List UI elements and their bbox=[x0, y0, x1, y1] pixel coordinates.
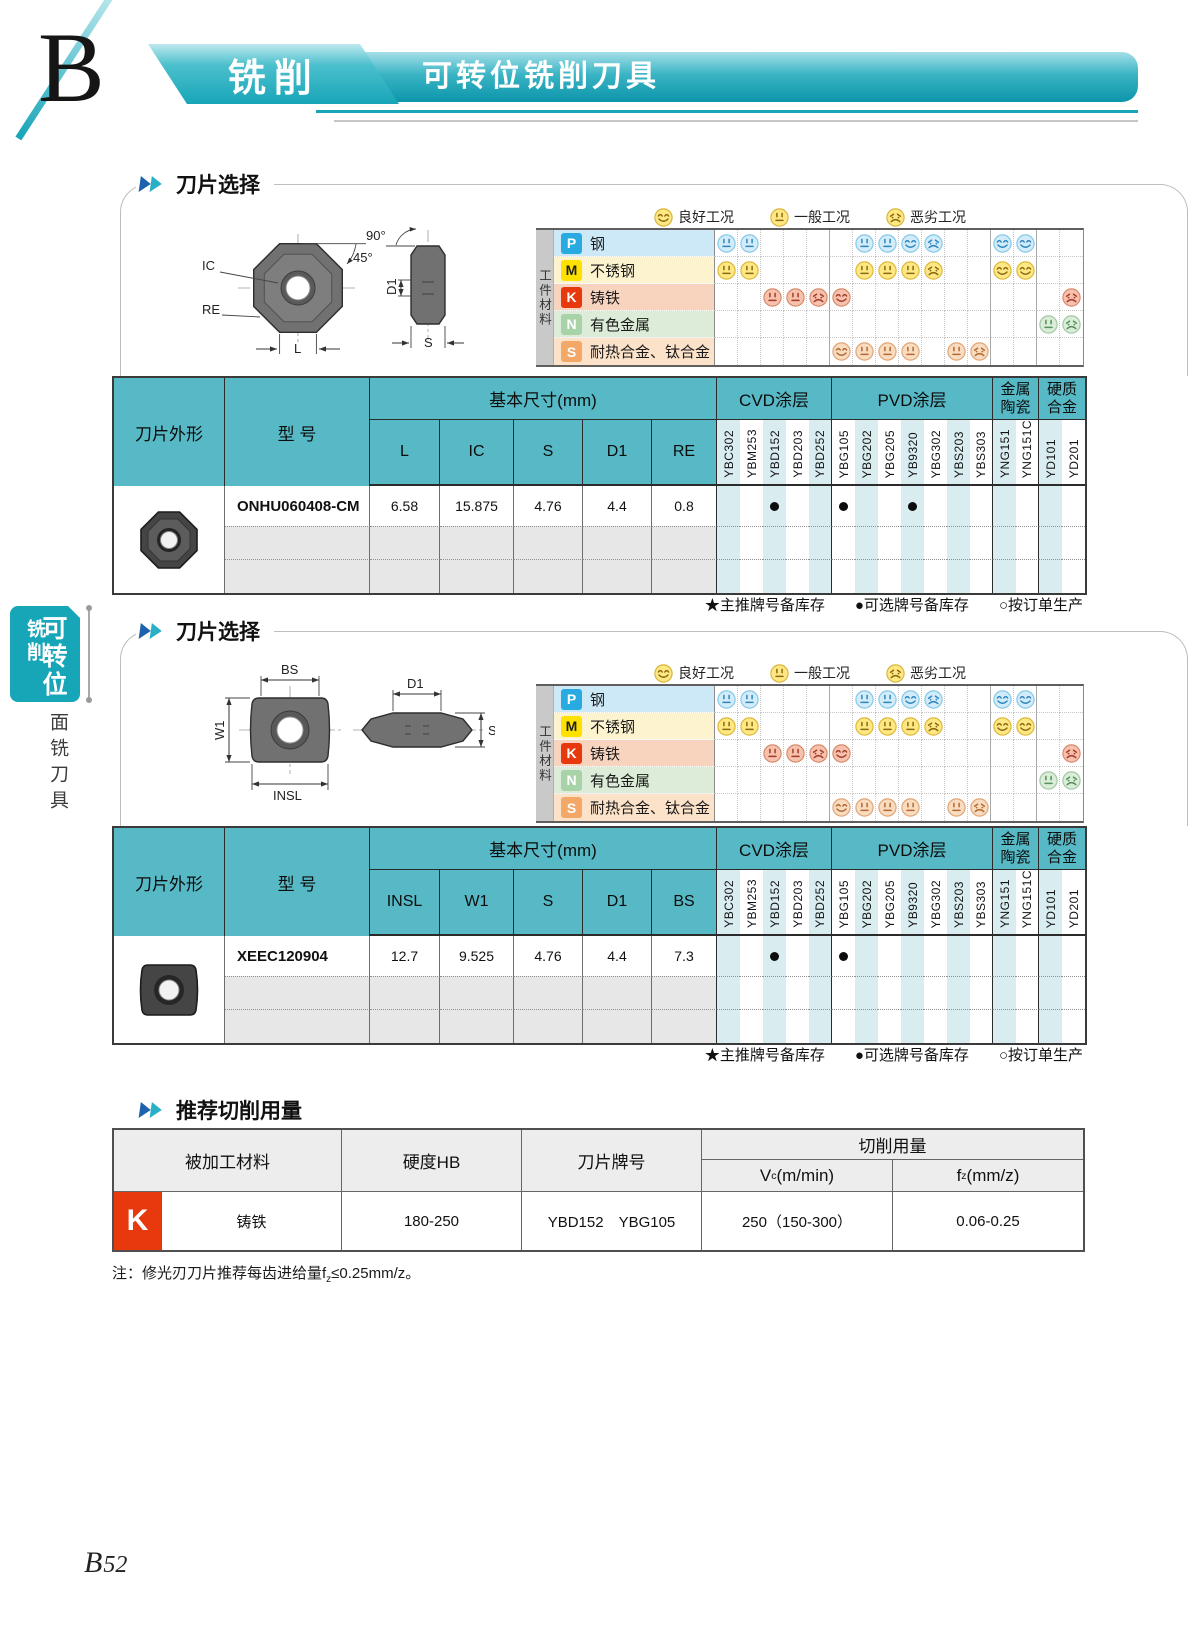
dim-label-ic: IC bbox=[202, 258, 215, 273]
suitability-cell bbox=[1014, 284, 1037, 311]
grade-column-header: YD201 bbox=[1062, 870, 1085, 936]
availability-cell bbox=[878, 486, 901, 526]
suitability-cell bbox=[945, 338, 968, 365]
stock-legend-2: ★主推牌号备库存●可选牌号备库存○按订单生产 bbox=[705, 1044, 1083, 1065]
grade-column-header: YB9320 bbox=[901, 420, 924, 486]
empty-availability-cell bbox=[809, 1009, 832, 1043]
empty-availability-cell bbox=[1039, 976, 1062, 1009]
good-face-icon bbox=[993, 261, 1012, 280]
material-name: 有色金属 bbox=[590, 314, 650, 335]
suitability-cell bbox=[853, 713, 876, 740]
empty-availability-cell bbox=[855, 976, 878, 1009]
good-face-icon bbox=[1016, 717, 1035, 736]
header-rule-accent bbox=[316, 110, 1138, 113]
grade-column-header: YBD203 bbox=[786, 420, 809, 486]
avg-face-icon bbox=[786, 744, 805, 763]
good-face-icon bbox=[1016, 261, 1035, 280]
suitability-cell bbox=[899, 230, 922, 257]
double-chevron-icon bbox=[138, 175, 166, 193]
grade-group-label: 硬质合金 bbox=[1047, 831, 1077, 867]
column-header-shape: 刀片外形 bbox=[114, 828, 225, 936]
availability-cell bbox=[1016, 486, 1039, 526]
material-row-label: S耐热合金、钛合金 bbox=[554, 794, 715, 821]
good-face-icon bbox=[1016, 690, 1035, 709]
empty-model-cell bbox=[225, 526, 370, 559]
suitability-cell bbox=[807, 338, 830, 365]
grade-name: YBG105 bbox=[838, 880, 850, 928]
suitability-cell bbox=[1060, 740, 1083, 767]
suitability-cell bbox=[784, 686, 807, 713]
empty-availability-cell bbox=[786, 559, 809, 593]
grade-column-header: YBS303 bbox=[970, 420, 993, 486]
legend-label: 良好工况 bbox=[678, 207, 734, 227]
grade-column-header: YBG105 bbox=[832, 420, 855, 486]
grade-group-line: 合金 bbox=[1047, 849, 1077, 867]
suitability-cell bbox=[830, 713, 853, 740]
grade-column-header: YBD152 bbox=[763, 420, 786, 486]
suitability-cell bbox=[945, 713, 968, 740]
empty-availability-cell bbox=[1016, 1009, 1039, 1043]
empty-availability-cell bbox=[786, 976, 809, 1009]
dimension-column-header: S bbox=[514, 870, 583, 936]
cut-header-vc: Vc(m/min) bbox=[702, 1160, 893, 1192]
size-value: 4.4 bbox=[583, 486, 652, 526]
empty-availability-cell bbox=[1062, 1009, 1085, 1043]
suitability-cell bbox=[1037, 284, 1060, 311]
header-rule-gray bbox=[334, 120, 1138, 122]
suitability-cell bbox=[945, 767, 968, 794]
suitability-cell bbox=[1037, 794, 1060, 821]
grade-column-header: YBC302 bbox=[717, 870, 740, 936]
grade-name: YBG202 bbox=[861, 880, 873, 928]
empty-availability-cell bbox=[947, 976, 970, 1009]
suitability-cell bbox=[1060, 230, 1083, 257]
suitability-cell bbox=[738, 338, 761, 365]
empty-size-cell bbox=[652, 976, 717, 1009]
empty-availability-cell bbox=[878, 526, 901, 559]
sidebar-section-label: 面铣刀具 bbox=[44, 712, 71, 816]
availability-cell bbox=[1039, 486, 1062, 526]
material-name: 不锈钢 bbox=[590, 260, 635, 281]
suitability-cell bbox=[991, 686, 1014, 713]
avg-face-icon bbox=[878, 234, 897, 253]
suitability-cell bbox=[899, 311, 922, 338]
empty-size-cell bbox=[514, 559, 583, 593]
suitability-cell bbox=[715, 713, 738, 740]
empty-availability-cell bbox=[970, 976, 993, 1009]
empty-size-cell bbox=[514, 1009, 583, 1043]
suitability-cell bbox=[968, 713, 991, 740]
grade-name: YB9320 bbox=[907, 882, 919, 928]
grade-group-line: 合金 bbox=[1047, 399, 1077, 417]
availability-cell bbox=[947, 936, 970, 976]
grade-name: YBM253 bbox=[746, 879, 758, 928]
avg-face-icon bbox=[740, 717, 759, 736]
material-row-label: K铸铁 bbox=[554, 284, 715, 311]
suitability-cell bbox=[991, 338, 1014, 365]
suitability-cell bbox=[922, 767, 945, 794]
suitability-cell bbox=[761, 686, 784, 713]
avg-face-icon bbox=[770, 208, 789, 227]
suitability-cell bbox=[1014, 230, 1037, 257]
suitability-cell bbox=[1037, 767, 1060, 794]
grade-name: YBD252 bbox=[814, 430, 826, 478]
suitability-cell bbox=[1037, 257, 1060, 284]
dimension-column-header: IC bbox=[440, 420, 514, 486]
grade-name: YBS203 bbox=[953, 431, 965, 478]
suitability-cell bbox=[1060, 713, 1083, 740]
empty-availability-cell bbox=[901, 1009, 924, 1043]
grade-column-header: YBS203 bbox=[947, 870, 970, 936]
vc-unit: (m/min) bbox=[776, 1166, 834, 1186]
material-badge-k: K bbox=[114, 1192, 162, 1250]
suitability-cell bbox=[899, 686, 922, 713]
avg-face-icon bbox=[740, 261, 759, 280]
suitability-cell bbox=[1037, 740, 1060, 767]
good-face-icon bbox=[832, 744, 851, 763]
suitability-cell bbox=[968, 338, 991, 365]
empty-availability-cell bbox=[786, 1009, 809, 1043]
dimension-column-header: W1 bbox=[440, 870, 514, 936]
suitability-cell bbox=[738, 767, 761, 794]
suitability-cell bbox=[922, 794, 945, 821]
grade-name: YNG151 bbox=[999, 429, 1011, 478]
dimension-column-header: INSL bbox=[370, 870, 440, 936]
suitability-cell bbox=[738, 740, 761, 767]
suitability-cell bbox=[876, 794, 899, 821]
grade-column-header: YBD152 bbox=[763, 870, 786, 936]
suitability-cell bbox=[761, 311, 784, 338]
column-header-model: 型 号 bbox=[225, 828, 370, 936]
grade-group-label: 金属陶瓷 bbox=[1000, 831, 1030, 867]
suitability-cell bbox=[761, 713, 784, 740]
chapter-letter: B bbox=[38, 18, 105, 118]
material-row-label: S耐热合金、钛合金 bbox=[554, 338, 715, 365]
grade-name: YNG151C bbox=[1021, 870, 1033, 928]
good-face-icon bbox=[832, 798, 851, 817]
grade-column-header: YD101 bbox=[1039, 870, 1062, 936]
legend-label: 恶劣工况 bbox=[910, 663, 966, 683]
dim-label-bs: BS bbox=[281, 662, 299, 677]
dimension-column-header: S bbox=[514, 420, 583, 486]
size-value: 4.4 bbox=[583, 936, 652, 976]
section-title-text: 刀片选择 bbox=[176, 169, 260, 199]
empty-availability-cell bbox=[901, 976, 924, 1009]
grade-group-header: 硬质合金 bbox=[1039, 828, 1085, 870]
dim-label-w1: W1 bbox=[212, 721, 227, 741]
empty-availability-cell bbox=[809, 976, 832, 1009]
suitability-cell bbox=[853, 257, 876, 284]
empty-size-cell bbox=[514, 526, 583, 559]
suitability-cell bbox=[761, 338, 784, 365]
empty-availability-cell bbox=[1016, 559, 1039, 593]
grade-column-header: YBC302 bbox=[717, 420, 740, 486]
suitability-cell bbox=[922, 311, 945, 338]
empty-availability-cell bbox=[740, 1009, 763, 1043]
availability-cell bbox=[740, 936, 763, 976]
size-value: 12.7 bbox=[370, 936, 440, 976]
suitability-cell bbox=[945, 686, 968, 713]
fz-unit: (mm/z) bbox=[967, 1166, 1020, 1186]
section-title-text: 推荐切削用量 bbox=[176, 1095, 302, 1125]
avg-face-icon bbox=[1039, 315, 1058, 334]
grade-name: YBD152 bbox=[769, 430, 781, 478]
suitability-cell bbox=[1037, 230, 1060, 257]
dim-label-s: S bbox=[488, 723, 495, 738]
header-category-label: 铣削 bbox=[227, 47, 319, 102]
empty-size-cell bbox=[652, 1009, 717, 1043]
suitability-cell bbox=[830, 284, 853, 311]
suitability-cell bbox=[1060, 338, 1083, 365]
suitability-cell bbox=[1060, 767, 1083, 794]
grade-name: YNG151 bbox=[999, 879, 1011, 928]
grade-column-header: YBG202 bbox=[855, 420, 878, 486]
insert-model: ONHU060408-CM bbox=[225, 486, 370, 526]
material-badge: N bbox=[561, 770, 582, 791]
grade-group-header: CVD涂层 bbox=[717, 378, 832, 420]
suitability-cell bbox=[991, 257, 1014, 284]
grade-group-label: 金属陶瓷 bbox=[1000, 381, 1030, 417]
suitability-cell bbox=[945, 257, 968, 284]
suitability-cell bbox=[853, 686, 876, 713]
suitability-cell bbox=[1014, 257, 1037, 284]
legend-item: 恶劣工况 bbox=[886, 207, 966, 227]
bad-face-icon bbox=[809, 744, 828, 763]
availability-cell bbox=[970, 936, 993, 976]
empty-availability-cell bbox=[740, 526, 763, 559]
grade-group-header: 金属陶瓷 bbox=[993, 828, 1039, 870]
material-badge: P bbox=[561, 689, 582, 710]
stock-legend-item: ★主推牌号备库存 bbox=[705, 594, 825, 615]
suitability-cell bbox=[784, 794, 807, 821]
availability-cell bbox=[878, 936, 901, 976]
sidebar-tab-sub: 铣削 bbox=[21, 619, 48, 665]
suitability-cell bbox=[899, 713, 922, 740]
empty-availability-cell bbox=[740, 559, 763, 593]
empty-size-cell bbox=[440, 526, 514, 559]
suitability-cell bbox=[968, 257, 991, 284]
suitability-cell bbox=[968, 767, 991, 794]
bad-face-icon bbox=[809, 288, 828, 307]
suitability-cell bbox=[830, 257, 853, 284]
section-title-text: 刀片选择 bbox=[176, 616, 260, 646]
suitability-cell bbox=[991, 284, 1014, 311]
cut-header-fz: fz(mm/z) bbox=[893, 1160, 1083, 1192]
grade-column-header: YBM253 bbox=[740, 870, 763, 936]
suitability-cell bbox=[830, 767, 853, 794]
avg-face-icon bbox=[717, 234, 736, 253]
empty-availability-cell bbox=[763, 526, 786, 559]
sidebar-rule bbox=[88, 610, 90, 698]
legend-label: 一般工况 bbox=[794, 663, 850, 683]
availability-cell bbox=[832, 486, 855, 526]
workpiece-material-text: 工件材料 bbox=[535, 725, 554, 783]
availability-cell bbox=[809, 936, 832, 976]
grade-column-header: YBG205 bbox=[878, 870, 901, 936]
grade-column-header: YBD252 bbox=[809, 420, 832, 486]
suitability-cell bbox=[784, 338, 807, 365]
availability-cell bbox=[809, 486, 832, 526]
empty-size-cell bbox=[583, 526, 652, 559]
availability-cell bbox=[855, 486, 878, 526]
column-header-model: 型 号 bbox=[225, 378, 370, 486]
empty-availability-cell bbox=[763, 1009, 786, 1043]
size-value: 4.76 bbox=[514, 936, 583, 976]
availability-dot bbox=[770, 952, 779, 961]
suitability-cell bbox=[899, 257, 922, 284]
suitability-cell bbox=[853, 311, 876, 338]
availability-cell bbox=[832, 936, 855, 976]
avg-face-icon bbox=[878, 717, 897, 736]
suitability-cell bbox=[738, 311, 761, 338]
availability-dot bbox=[839, 502, 848, 511]
empty-availability-cell bbox=[717, 976, 740, 1009]
cut-header-material: 被加工材料 bbox=[114, 1130, 342, 1192]
avg-face-icon bbox=[740, 690, 759, 709]
empty-availability-cell bbox=[786, 526, 809, 559]
dim-label-re: RE bbox=[202, 302, 220, 317]
stock-legend-item: ○按订单生产 bbox=[999, 1044, 1083, 1065]
section1-title: 刀片选择 bbox=[136, 170, 274, 198]
suitability-cell bbox=[715, 257, 738, 284]
suitability-cell bbox=[876, 311, 899, 338]
suitability-cell bbox=[1060, 284, 1083, 311]
size-value: 0.8 bbox=[652, 486, 717, 526]
suitability-cell bbox=[807, 713, 830, 740]
material-badge: S bbox=[561, 341, 582, 362]
bad-face-icon bbox=[886, 664, 905, 683]
insert-photo-square bbox=[136, 960, 202, 1020]
suitability-cell bbox=[807, 257, 830, 284]
suitability-cell bbox=[761, 740, 784, 767]
bad-face-icon bbox=[1062, 315, 1081, 334]
suitability-cell bbox=[807, 794, 830, 821]
suitability-cell bbox=[715, 284, 738, 311]
good-face-icon bbox=[901, 234, 920, 253]
avg-face-icon bbox=[901, 342, 920, 361]
column-header-sizes: 基本尺寸(mm) bbox=[370, 828, 717, 870]
availability-dot bbox=[839, 952, 848, 961]
availability-cell bbox=[993, 936, 1016, 976]
suitability-cell bbox=[807, 230, 830, 257]
availability-cell bbox=[901, 936, 924, 976]
suitability-cell bbox=[807, 767, 830, 794]
empty-availability-cell bbox=[901, 559, 924, 593]
suitability-cell bbox=[991, 311, 1014, 338]
empty-availability-cell bbox=[993, 559, 1016, 593]
suitability-cell bbox=[1014, 713, 1037, 740]
empty-model-cell bbox=[225, 559, 370, 593]
page-title: 可转位铣削刀具 bbox=[266, 52, 1138, 102]
insert-drawing-square: BS W1 INSL D1 S bbox=[195, 652, 495, 802]
good-face-icon bbox=[832, 342, 851, 361]
grade-name: YD101 bbox=[1045, 439, 1057, 478]
suitability-cell bbox=[853, 230, 876, 257]
empty-size-cell bbox=[440, 559, 514, 593]
cut-vc-value: 250（150-300） bbox=[702, 1192, 893, 1250]
suitability-cell bbox=[761, 794, 784, 821]
suitability-cell bbox=[922, 740, 945, 767]
availability-dot bbox=[908, 502, 917, 511]
bad-face-icon bbox=[1062, 744, 1081, 763]
suitability-cell bbox=[853, 740, 876, 767]
cut-fz-value: 0.06-0.25 bbox=[893, 1192, 1083, 1250]
footnote: 注：修光刃刀片推荐每齿进给量fz≤0.25mm/z。 bbox=[112, 1262, 420, 1285]
empty-size-cell bbox=[652, 559, 717, 593]
empty-availability-cell bbox=[1039, 526, 1062, 559]
grade-name: YD201 bbox=[1068, 889, 1080, 928]
dim-label-d1: D1 bbox=[407, 676, 424, 691]
dim-label-d1: D1 bbox=[384, 278, 399, 295]
bad-face-icon bbox=[970, 798, 989, 817]
good-face-icon bbox=[993, 717, 1012, 736]
suitability-cell bbox=[784, 713, 807, 740]
material-row-label: N有色金属 bbox=[554, 311, 715, 338]
grade-name: YBS303 bbox=[975, 881, 987, 928]
empty-availability-cell bbox=[1016, 976, 1039, 1009]
grade-name: YD201 bbox=[1068, 439, 1080, 478]
suitability-cell bbox=[922, 230, 945, 257]
empty-availability-cell bbox=[1062, 976, 1085, 1009]
material-name: 不锈钢 bbox=[590, 716, 635, 737]
grade-name: YBG205 bbox=[884, 430, 896, 478]
grade-name: YBD252 bbox=[814, 880, 826, 928]
suitability-cell bbox=[991, 230, 1014, 257]
avg-face-icon bbox=[786, 288, 805, 307]
good-face-icon bbox=[901, 690, 920, 709]
suitability-cell bbox=[876, 257, 899, 284]
suitability-cell bbox=[853, 338, 876, 365]
material-name: 有色金属 bbox=[590, 770, 650, 791]
grade-name: YBG302 bbox=[930, 430, 942, 478]
suitability-cell bbox=[876, 338, 899, 365]
grade-name: YBG205 bbox=[884, 880, 896, 928]
empty-availability-cell bbox=[809, 526, 832, 559]
grade-column-header: YNG151 bbox=[993, 870, 1016, 936]
empty-availability-cell bbox=[993, 526, 1016, 559]
suitability-cell bbox=[899, 794, 922, 821]
footnote-post: ≤0.25mm/z。 bbox=[331, 1265, 420, 1282]
suitability-cell bbox=[899, 338, 922, 365]
empty-availability-cell bbox=[878, 1009, 901, 1043]
dimension-column-header: D1 bbox=[583, 420, 652, 486]
suitability-cell bbox=[945, 230, 968, 257]
suitability-cell bbox=[1037, 713, 1060, 740]
suitability-cell bbox=[968, 311, 991, 338]
material-name: 耐热合金、钛合金 bbox=[590, 797, 710, 818]
suitability-cell bbox=[945, 740, 968, 767]
column-header-sizes: 基本尺寸(mm) bbox=[370, 378, 717, 420]
avg-face-icon bbox=[717, 261, 736, 280]
legend-label: 一般工况 bbox=[794, 207, 850, 227]
grade-column-header: YBG302 bbox=[924, 420, 947, 486]
avg-face-icon bbox=[901, 798, 920, 817]
suitability-cell bbox=[876, 767, 899, 794]
legend-item: 恶劣工况 bbox=[886, 663, 966, 683]
suitability-cell bbox=[715, 311, 738, 338]
page-number-digits: 52 bbox=[103, 1552, 127, 1578]
avg-face-icon bbox=[901, 261, 920, 280]
empty-availability-cell bbox=[924, 1009, 947, 1043]
suitability-cell bbox=[738, 257, 761, 284]
empty-availability-cell bbox=[993, 1009, 1016, 1043]
good-face-icon bbox=[654, 664, 673, 683]
suitability-cell bbox=[853, 284, 876, 311]
avg-face-icon bbox=[717, 690, 736, 709]
empty-availability-cell bbox=[901, 526, 924, 559]
cut-material-value: 铸铁 bbox=[162, 1192, 342, 1250]
empty-availability-cell bbox=[763, 559, 786, 593]
